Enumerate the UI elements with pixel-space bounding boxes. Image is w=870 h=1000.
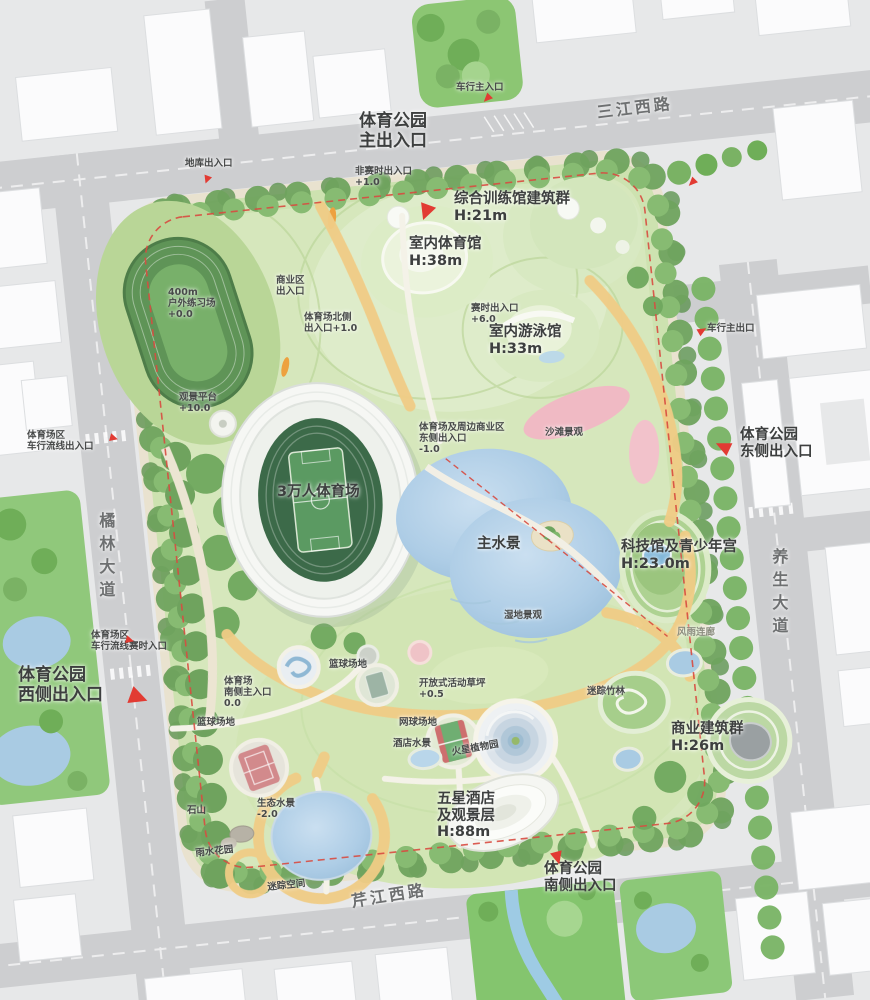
basketball-court-north-shape: [355, 663, 399, 707]
spiral-water-garden: [277, 645, 321, 689]
sports-park-master-plan: 三江西路体育公园主出入口车行主入口地库出入口非赛时出入口+1.0综合训练馆建筑群…: [0, 0, 870, 1000]
courtyard-building-hole: [820, 399, 870, 465]
small-pond-southeast: [613, 747, 643, 772]
pink-garden-circle: [408, 640, 432, 664]
site-plan-canvas: [0, 0, 870, 1000]
